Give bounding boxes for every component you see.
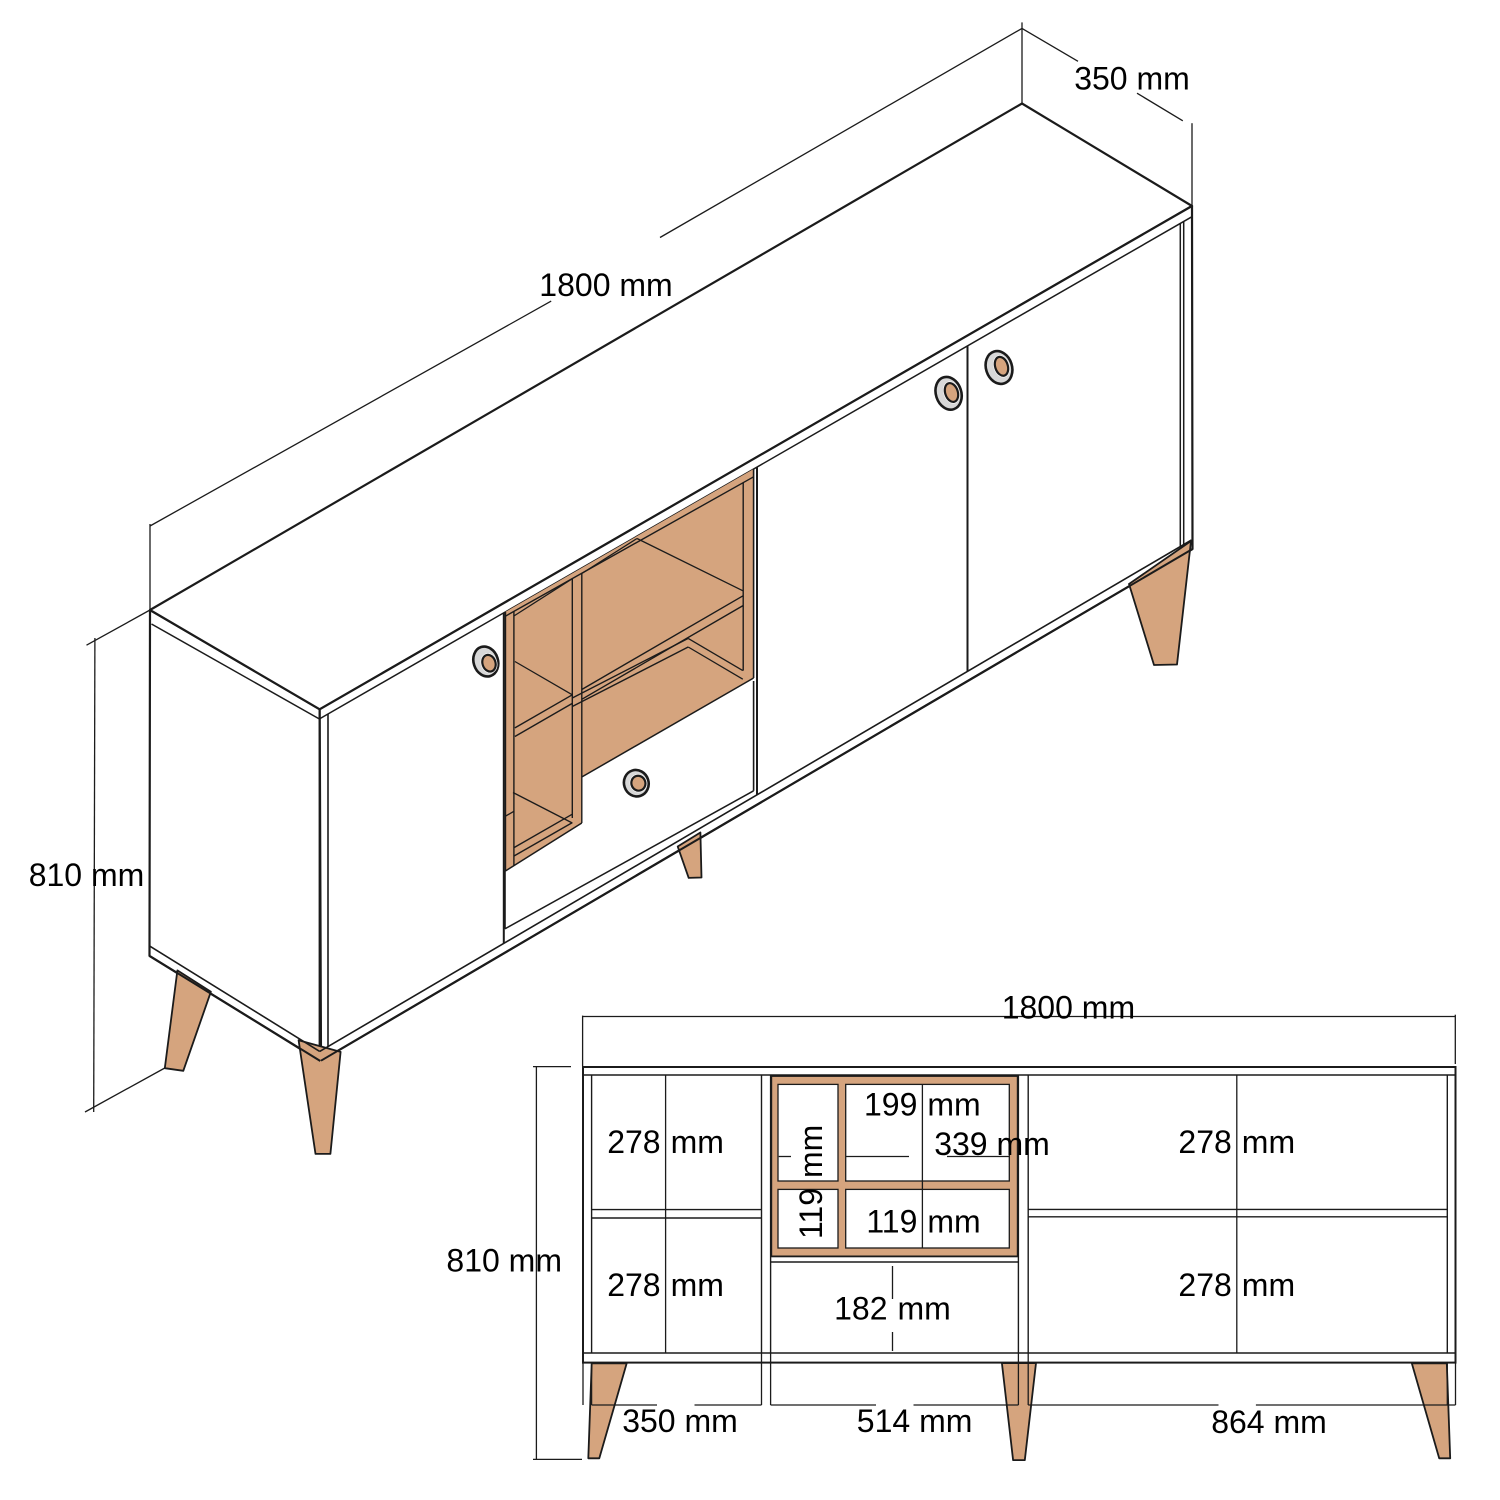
svg-text:mm: mm (927, 1204, 980, 1240)
svg-text:864 mm: 864 mm (1211, 1404, 1327, 1440)
svg-text:1800 mm: 1800 mm (539, 267, 672, 303)
svg-text:199: 199 (864, 1087, 917, 1123)
svg-text:mm: mm (793, 1125, 829, 1178)
svg-text:278: 278 (1178, 1124, 1231, 1160)
svg-text:119: 119 (866, 1204, 917, 1240)
svg-text:mm: mm (1242, 1124, 1295, 1160)
svg-text:810 mm: 810 mm (29, 857, 145, 893)
svg-text:1800 mm: 1800 mm (1002, 989, 1135, 1025)
svg-text:119: 119 (793, 1188, 829, 1239)
svg-text:350 mm: 350 mm (1074, 61, 1190, 97)
svg-text:278: 278 (1178, 1267, 1231, 1303)
svg-text:278: 278 (607, 1124, 660, 1160)
svg-text:810 mm: 810 mm (446, 1242, 562, 1278)
svg-text:mm: mm (927, 1087, 980, 1123)
svg-text:mm: mm (898, 1291, 951, 1327)
svg-text:mm: mm (671, 1124, 724, 1160)
svg-text:514 mm: 514 mm (857, 1403, 973, 1439)
svg-text:mm: mm (671, 1267, 724, 1303)
svg-text:339 mm: 339 mm (934, 1126, 1050, 1162)
svg-text:182: 182 (834, 1291, 887, 1327)
svg-text:278: 278 (607, 1267, 660, 1303)
svg-text:mm: mm (1242, 1267, 1295, 1303)
svg-text:350 mm: 350 mm (622, 1403, 738, 1439)
